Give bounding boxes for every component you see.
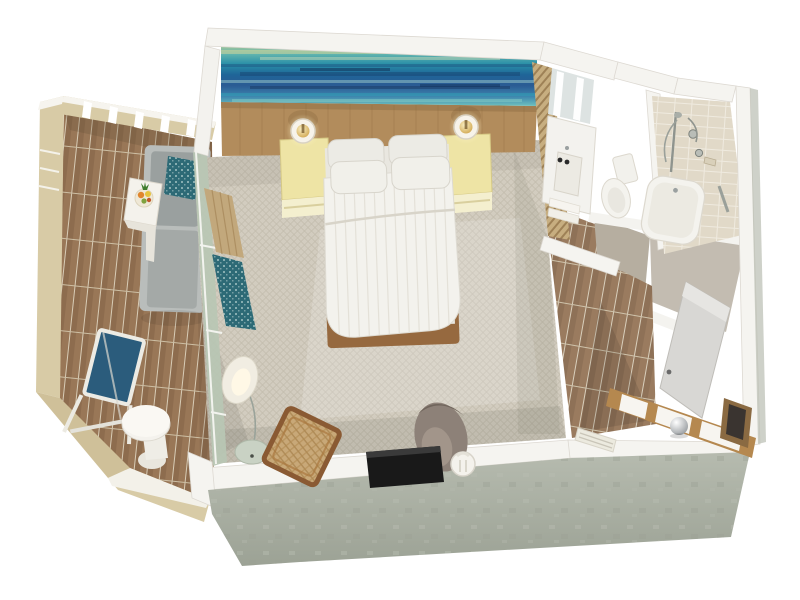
vanity [542,68,596,224]
floor-plan-rendering: 3D floor plan rendering of a hotel guest… [0,0,800,600]
fruit-bowl [135,189,153,207]
wall-top-shower [674,78,736,102]
bathtub [639,174,707,247]
toilet [593,153,646,221]
wall-top-bath [614,62,678,94]
luggage-sphere [670,417,688,435]
floor-plan-stage: 3D floor plan rendering of a hotel guest… [0,0,800,600]
left-return-wall [194,46,220,156]
door-handle [667,370,672,375]
king-bed [320,134,461,349]
faucet [565,146,569,150]
tv [366,446,444,488]
headboard-wall [194,28,544,156]
tv-side-lamp [451,452,475,476]
